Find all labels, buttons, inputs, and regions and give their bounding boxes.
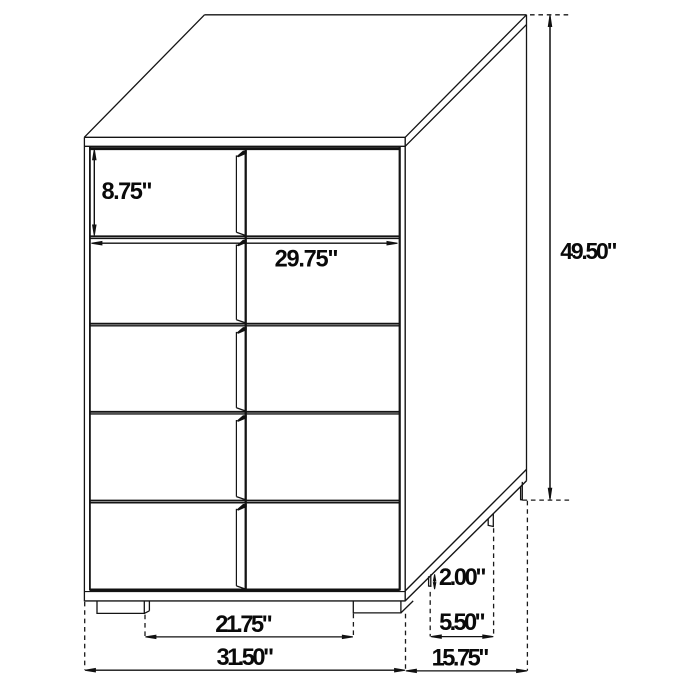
svg-text:49.50": 49.50" [560, 238, 617, 264]
svg-text:15.75": 15.75" [432, 646, 490, 672]
svg-text:2.00": 2.00" [439, 565, 487, 591]
svg-text:29.75": 29.75" [275, 246, 339, 272]
svg-text:5.50": 5.50" [439, 610, 486, 636]
svg-text:21.75": 21.75" [215, 612, 273, 638]
svg-text:31.50": 31.50" [217, 645, 275, 671]
svg-text:8.75": 8.75" [102, 179, 153, 205]
